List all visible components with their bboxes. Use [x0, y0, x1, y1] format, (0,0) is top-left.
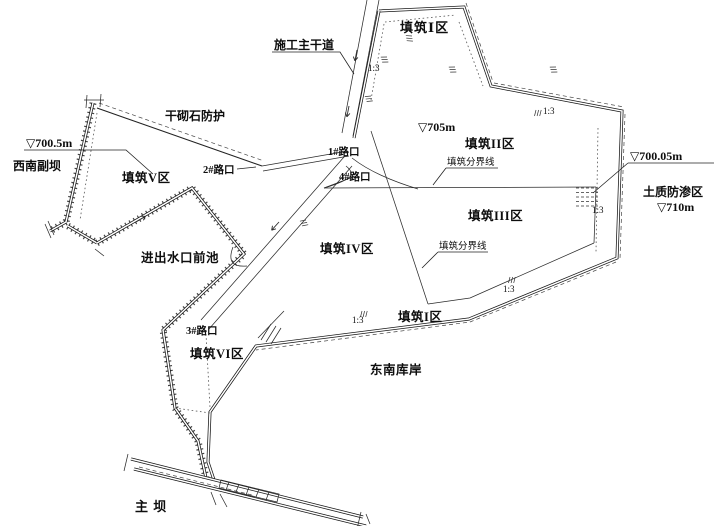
slope-tick	[381, 56, 387, 59]
label-slope-4: 1:3	[503, 284, 515, 294]
leaders	[24, 52, 714, 268]
right-slope-ladder	[576, 188, 598, 206]
boundary1-leader	[433, 168, 498, 185]
slope-tick-glyph	[300, 219, 308, 228]
slope-tick-glyph	[381, 56, 389, 64]
label-junction4: 4#路口	[339, 170, 371, 183]
dam-end-caps	[124, 454, 370, 526]
label-zone3: 填筑III区	[468, 208, 523, 223]
slope-tick	[406, 37, 412, 40]
label-boundary1: 填筑分界线	[447, 156, 495, 168]
forebay-band-outer	[97, 188, 244, 478]
label-zone2: 填筑II区	[465, 136, 515, 151]
slope-tick	[450, 71, 456, 74]
main-road-leader	[272, 52, 354, 74]
label-slope-2: 1:3	[543, 106, 555, 116]
slope-tick	[367, 99, 373, 102]
boundary2-leader	[422, 252, 488, 268]
slope-tick	[449, 66, 455, 69]
slope-tick	[302, 223, 308, 227]
slope-tick-glyph	[550, 66, 558, 74]
label-zone6: 填筑VI区	[190, 346, 244, 361]
road-past-dam	[211, 492, 227, 507]
slope-tick-glyph	[509, 277, 516, 283]
label-elev-700-05: ▽700.05m	[630, 149, 682, 163]
label-zone4: 填筑IV区	[320, 241, 374, 256]
label-slope-3: 1:3	[592, 205, 604, 215]
slope-tick-glyph	[449, 66, 457, 74]
sw-dam-outer	[50, 103, 97, 243]
slope-tick	[382, 61, 388, 64]
deco-line	[353, 57, 355, 61]
label-main-road: 施工主干道	[274, 37, 334, 52]
label-se-bank: 东南库岸	[370, 362, 422, 377]
main-boundary-core	[208, 7, 622, 480]
label-zone5: 填筑V区	[122, 170, 171, 185]
forebay-tip-flare	[95, 249, 104, 256]
slope-tick-glyph	[535, 110, 542, 116]
dam-centerline	[139, 467, 252, 495]
label-elev-710: ▽710m	[657, 200, 694, 214]
main-boundary-outer	[208, 7, 622, 480]
slope-tick	[366, 311, 368, 317]
sw-dam-core	[50, 103, 97, 243]
slope-tick-glyph	[406, 35, 413, 43]
slope-tick	[381, 58, 387, 61]
sw-dam-top-cap	[84, 94, 104, 108]
offset-dash-right	[256, 3, 625, 350]
slope-tick	[449, 68, 455, 71]
text-labels: 施工主干道 填筑Ⅰ区 干砌石防护 ▽700.5m 西南副坝 填筑V区 2#路口 …	[13, 20, 703, 514]
label-sw-dam: 西南副坝	[13, 158, 61, 173]
divider-zone2-3	[324, 187, 596, 188]
slope-tick	[535, 110, 537, 116]
slope-tick	[365, 95, 371, 98]
label-elev-705: ▽705m	[418, 120, 455, 134]
label-elev-700-5: ▽700.5m	[26, 136, 72, 150]
label-junction1: 1#路口	[328, 145, 360, 158]
slope-tick	[540, 110, 542, 116]
site-plan-svg: 施工主干道 填筑Ⅰ区 干砌石防护 ▽700.5m 西南副坝 填筑V区 2#路口 …	[0, 0, 722, 526]
label-zone1-top: 填筑Ⅰ区	[400, 20, 449, 35]
slope-tick	[537, 110, 539, 116]
label-seepage: 土质防渗区	[643, 184, 703, 199]
dam-lower-core	[134, 469, 366, 526]
label-slope-5: 1:3	[352, 315, 364, 325]
junction2-leader	[237, 167, 256, 169]
label-junction2: 2#路口	[203, 163, 235, 176]
site-plan-canvas: 施工主干道 填筑Ⅰ区 干砌石防护 ▽700.5m 西南副坝 填筑V区 2#路口 …	[0, 0, 722, 526]
slope-tick	[551, 71, 557, 74]
label-forebay: 进出水口前池	[141, 250, 219, 265]
label-main-dam: 主 坝	[135, 499, 167, 514]
slope-tick	[550, 68, 556, 71]
shore-slope-fan	[261, 324, 281, 344]
label-dry-masonry: 干砌石防护	[165, 108, 225, 123]
label-junction3: 3#路口	[186, 324, 218, 337]
label-boundary2: 填筑分界线	[439, 240, 487, 252]
slope-tick	[407, 40, 413, 43]
divider-zone3-left	[371, 131, 428, 304]
main-dam	[124, 454, 370, 526]
label-slope-1: 1:3	[368, 63, 380, 73]
road-dashed-centerline	[206, 334, 210, 408]
label-zone1-low: 填筑I区	[398, 309, 442, 324]
slope-tick	[550, 66, 556, 69]
divider-zone3-right	[594, 187, 596, 243]
